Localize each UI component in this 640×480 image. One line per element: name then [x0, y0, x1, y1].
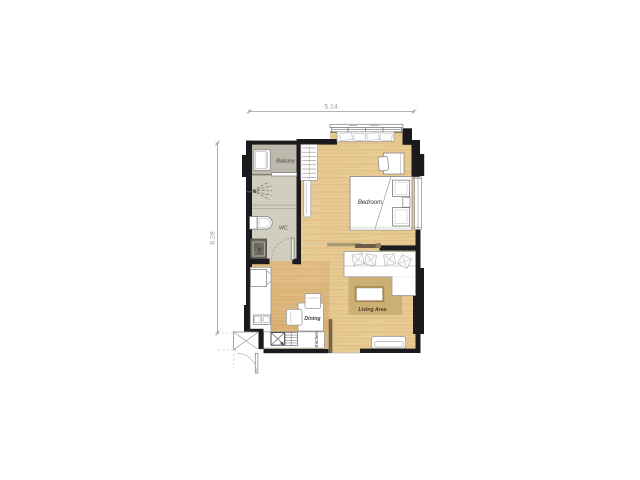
- svg-text:Kitchen: Kitchen: [314, 331, 320, 347]
- svg-text:Living Area: Living Area: [358, 307, 386, 313]
- svg-text:WC.: WC.: [279, 225, 289, 231]
- svg-text:Bedroom: Bedroom: [358, 200, 382, 206]
- svg-text:8.28: 8.28: [210, 231, 217, 244]
- svg-text:Dining: Dining: [304, 316, 321, 322]
- svg-text:5.14: 5.14: [324, 104, 337, 111]
- svg-text:Balcony: Balcony: [276, 158, 295, 164]
